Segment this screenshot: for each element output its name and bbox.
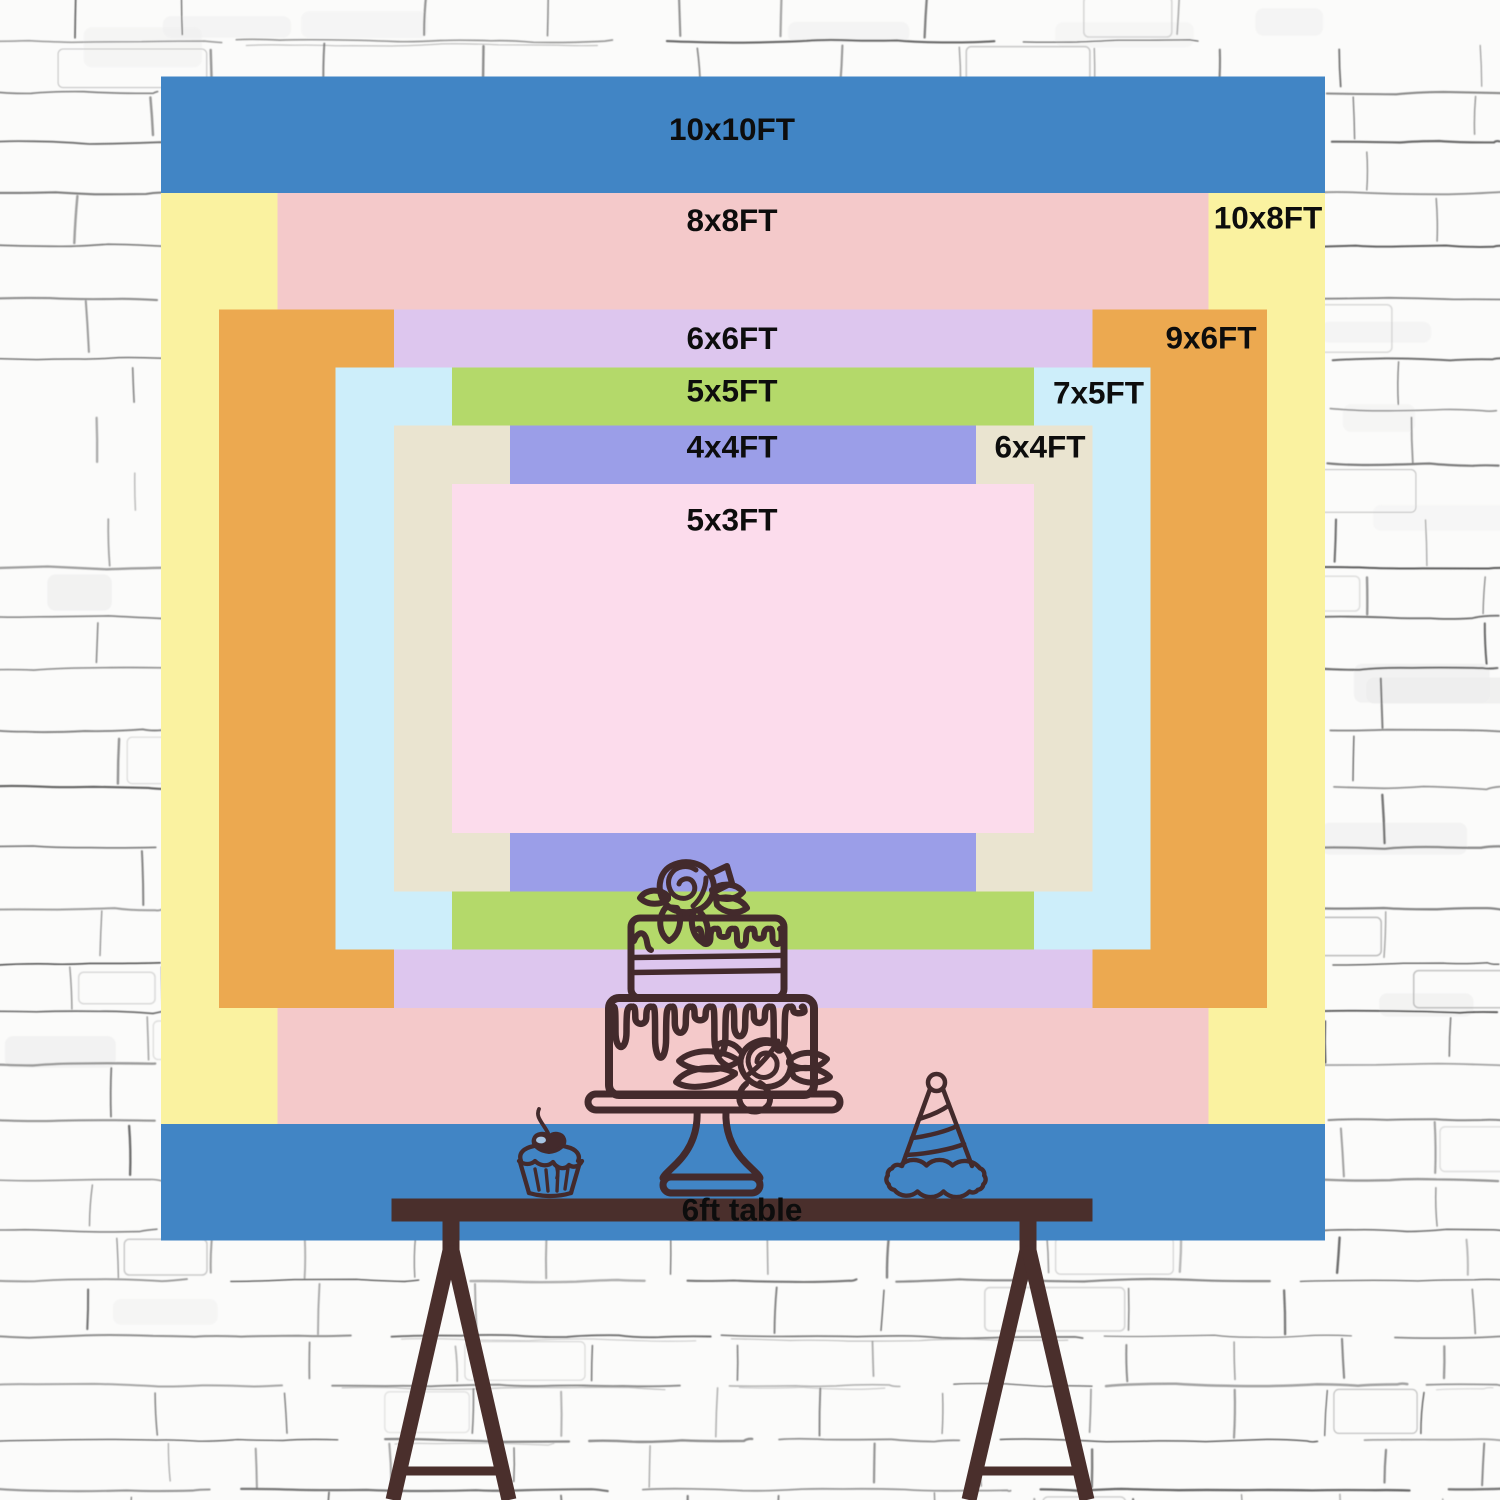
svg-text:5x5FT: 5x5FT [686,373,777,409]
svg-text:10x8FT: 10x8FT [1214,200,1323,236]
svg-text:6x6FT: 6x6FT [686,320,777,356]
svg-text:4x4FT: 4x4FT [686,429,777,465]
svg-text:9x6FT: 9x6FT [1165,320,1256,356]
svg-text:6ft table: 6ft table [682,1192,803,1228]
svg-text:5x3FT: 5x3FT [686,502,777,538]
svg-text:7x5FT: 7x5FT [1053,375,1144,411]
svg-text:10x10FT: 10x10FT [669,111,795,147]
svg-text:6x4FT: 6x4FT [994,429,1085,465]
svg-text:8x8FT: 8x8FT [686,202,777,238]
